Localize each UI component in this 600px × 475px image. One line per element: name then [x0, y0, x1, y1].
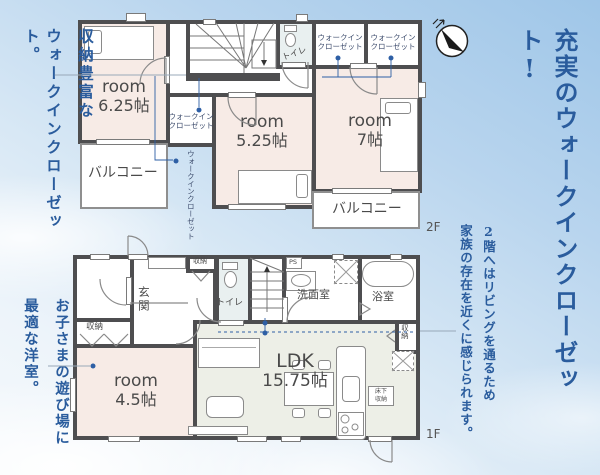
room-name: room — [88, 78, 160, 97]
toilet-tank — [284, 25, 297, 32]
window — [228, 204, 286, 210]
ldk-size: 15.75帖 — [240, 372, 350, 391]
wic-label-vertical: ウォークインクローゼット — [186, 150, 195, 208]
storage-label: 収納 — [86, 323, 103, 333]
floor2-label: 2F — [426, 221, 441, 234]
washer — [334, 260, 358, 284]
bath-label: 浴室 — [372, 291, 394, 303]
storage-label: 収納 — [193, 258, 207, 266]
door-gap — [228, 92, 256, 98]
door-gap — [282, 297, 288, 323]
door-gap — [128, 254, 148, 260]
underfloor-line: 収納 — [369, 396, 393, 404]
caption-left-bottom: お子さまの遊び場に最適な洋室。 — [10, 298, 72, 468]
room-size: 5.25帖 — [227, 132, 297, 150]
caption-line: 最適な洋室。 — [20, 298, 41, 468]
flyer-canvas: room 6.25帖 room 5.25帖 room 7帖 ウォークイン クロー… — [0, 0, 600, 475]
toilet-label: トイレ — [216, 298, 243, 308]
underfloor-line: 床下 — [369, 388, 393, 396]
window — [203, 19, 216, 25]
room-label: room 6.25帖 — [88, 78, 160, 115]
room-name: room — [96, 372, 176, 391]
chair — [292, 408, 305, 418]
fridge-space — [392, 351, 414, 371]
bathtub — [362, 261, 414, 287]
floor1-label: 1F — [426, 428, 441, 441]
door-gap — [126, 277, 132, 305]
room-name: room — [227, 113, 297, 132]
f2-stairs-wall — [186, 22, 190, 78]
window — [108, 436, 140, 442]
window — [96, 139, 150, 145]
wic-line: ウォークイン — [365, 33, 421, 42]
toilet-bowl — [224, 271, 237, 288]
door-gap — [218, 320, 244, 326]
window — [296, 14, 308, 22]
sink — [291, 274, 311, 287]
tv-board — [188, 426, 248, 435]
window — [126, 13, 146, 22]
caption-line: お子さまの遊び場に — [51, 298, 72, 468]
chair — [318, 408, 331, 418]
caption-line: 充実のウォークインクローゼット! — [512, 28, 582, 448]
room-label: room 5.25帖 — [227, 113, 297, 150]
window — [237, 436, 267, 442]
wic-line: クローゼット — [313, 42, 367, 51]
caption-line: 2階へはリビングを通るため — [479, 224, 498, 449]
entrance-label: 玄関 — [137, 286, 150, 313]
room-label: room 4.5帖 — [96, 372, 176, 409]
caption-line: 家族の存在を近くに感じられます。 — [456, 224, 475, 449]
caption-right-sub: 2階へはリビングを通るため家族の存在を近くに感じられます。 — [452, 224, 498, 449]
room-size: 6.25帖 — [88, 97, 160, 115]
door-gap — [350, 63, 377, 69]
ldk-label: LDK 15.75帖 — [240, 351, 350, 391]
wic-line: ウォークイン — [167, 112, 215, 121]
wic-line: ウォークイン — [186, 150, 195, 195]
balcony-label: バルコニー — [332, 202, 402, 218]
window — [332, 188, 392, 194]
coffee-table — [206, 396, 244, 418]
caption-right-main: 2階全居室には、充実のウォークインクローゼット! — [496, 28, 600, 448]
window — [418, 82, 426, 98]
window — [281, 436, 301, 442]
ps-label: PS — [289, 259, 297, 266]
window — [390, 254, 402, 260]
compass-icon — [433, 19, 468, 57]
shoe-cabinet — [148, 257, 186, 269]
wic-line: クローゼット — [167, 121, 215, 130]
storage-label: 収納 — [400, 324, 408, 339]
pillow — [296, 174, 308, 198]
toilet-bowl — [285, 33, 296, 47]
caption-left-top: 収納豊富なウォークインクローゼット。 — [10, 28, 96, 263]
sofa-line — [202, 347, 256, 348]
door-gap — [164, 56, 170, 84]
balcony-label: バルコニー — [88, 166, 160, 182]
toilet-tank — [222, 262, 238, 270]
wic-line: クローゼット — [365, 42, 421, 51]
caption-line: 収納豊富な — [74, 28, 96, 263]
underfloor-storage-label: 床下 収納 — [369, 388, 393, 404]
wic-label: ウォークイン クローゼット — [167, 112, 215, 131]
room-size: 7帖 — [340, 131, 400, 149]
room-label: room 7帖 — [340, 112, 400, 149]
wic-label: ウォークイン クローゼット — [365, 33, 421, 52]
f1-stairs — [248, 255, 286, 326]
stove — [338, 412, 364, 436]
room-name: room — [340, 112, 400, 131]
f1-shoe-room — [73, 255, 134, 326]
room-size: 4.5帖 — [96, 391, 176, 409]
f2-hall-wall — [186, 73, 280, 81]
door-gap — [368, 436, 392, 442]
wic-label: ウォークイン クローゼット — [313, 33, 367, 52]
ldk-name: LDK — [240, 351, 350, 372]
caption-line: ウォークインクローゼット。 — [20, 28, 64, 263]
wic-line: ウォークイン — [313, 33, 367, 42]
wic-line: クローゼット — [186, 195, 195, 240]
washroom-label: 洗面室 — [297, 289, 330, 301]
